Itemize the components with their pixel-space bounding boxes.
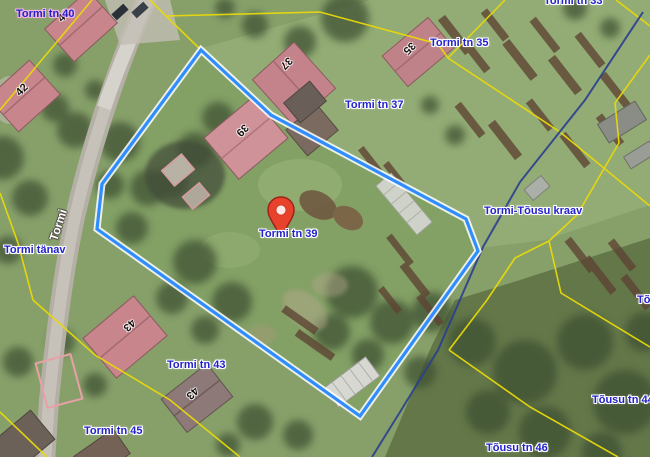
label-tormi-tn-37: Tormi tn 37 [345, 99, 403, 111]
label-tousu-tn-46: Tõusu tn 46 [486, 442, 548, 454]
label-tormi-tn-45: Tormi tn 45 [84, 425, 142, 437]
label-tormi-tanav: Tormi tänav [4, 244, 66, 256]
map-canvas[interactable]: Tormi tn 40 Tormi tn 33 Tormi tn 35 Torm… [0, 0, 650, 457]
label-tousu-clipped: Tõusu [637, 294, 650, 306]
label-tormi-tn-43: Tormi tn 43 [167, 359, 225, 371]
label-tormi-tn-35: Tormi tn 35 [430, 37, 488, 49]
label-tormi-tn-39: Tormi tn 39 [259, 228, 317, 240]
aerial-imagery [0, 0, 650, 457]
label-tousu-tn-44: Tõusu tn 44 [592, 394, 650, 406]
label-tormi-tousu-kraav: Tormi-Tõusu kraav [484, 205, 582, 217]
label-tormi-tn-33: Tormi tn 33 [544, 0, 602, 7]
label-tormi-tn-40: Tormi tn 40 [16, 8, 74, 20]
